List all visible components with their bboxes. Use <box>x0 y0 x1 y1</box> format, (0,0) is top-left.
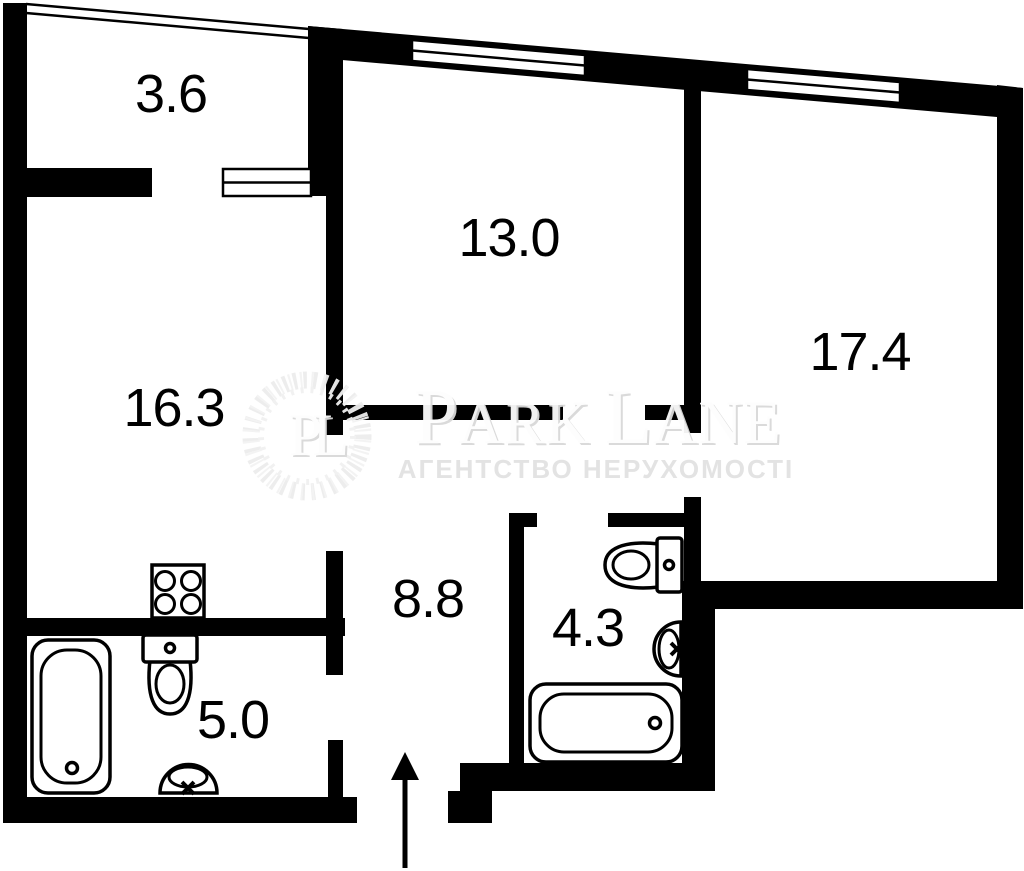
room-label-room-17: 17.4 <box>809 322 910 382</box>
room-label-bathroom-left: 5.0 <box>197 690 269 750</box>
wall-outer-right <box>997 85 1023 609</box>
wall-bath4-right <box>682 581 715 791</box>
wall-balcony-bottom <box>27 168 152 197</box>
room-label-room-16: 16.3 <box>123 378 224 438</box>
wall-bath4-top-right <box>608 513 684 527</box>
stove-icon <box>152 565 204 618</box>
sink-icon <box>654 622 683 676</box>
balcony-glazing <box>26 4 309 38</box>
entrance-arrow-icon <box>391 752 419 868</box>
wall-bath4-bottom <box>460 763 682 791</box>
wall-balcony-divider <box>308 26 343 196</box>
wall-divider-13-17 <box>684 70 701 433</box>
wall-entry-step <box>448 791 492 823</box>
toilet-icon <box>605 538 682 592</box>
wall-16-right-upper <box>326 196 343 435</box>
bathtub-icon <box>530 684 682 762</box>
bathtub-icon <box>32 640 110 793</box>
watermark-tagline: АГЕНТСТВО НЕРУХОМОСТІ <box>398 454 794 484</box>
wall-bath4-left <box>509 513 524 763</box>
window-balcony-16 <box>223 169 311 196</box>
room-label-bathroom-center: 4.3 <box>552 598 624 658</box>
floor-plan-page: 3.6 13.0 17.4 16.3 8.8 5.0 4.3 PL PL PAR… <box>0 0 1024 871</box>
sink-icon <box>160 765 217 795</box>
wall-17-bottom <box>684 581 1023 609</box>
wall-outer-bottom <box>3 797 357 823</box>
wall-16-right-lower <box>326 551 343 675</box>
wall-outer-left <box>3 3 27 823</box>
wall-bath4-top-left <box>509 513 537 527</box>
watermark-monogram: PL <box>289 402 346 468</box>
toilet-icon <box>143 635 197 714</box>
watermark-brand: PARKLANE <box>414 373 781 460</box>
floor-plan-svg: 3.6 13.0 17.4 16.3 8.8 5.0 4.3 PL PL PAR… <box>0 0 1024 871</box>
room-label-hallway: 8.8 <box>392 569 464 629</box>
room-label-room-13: 13.0 <box>458 208 559 268</box>
room-label-balcony: 3.6 <box>135 64 207 124</box>
